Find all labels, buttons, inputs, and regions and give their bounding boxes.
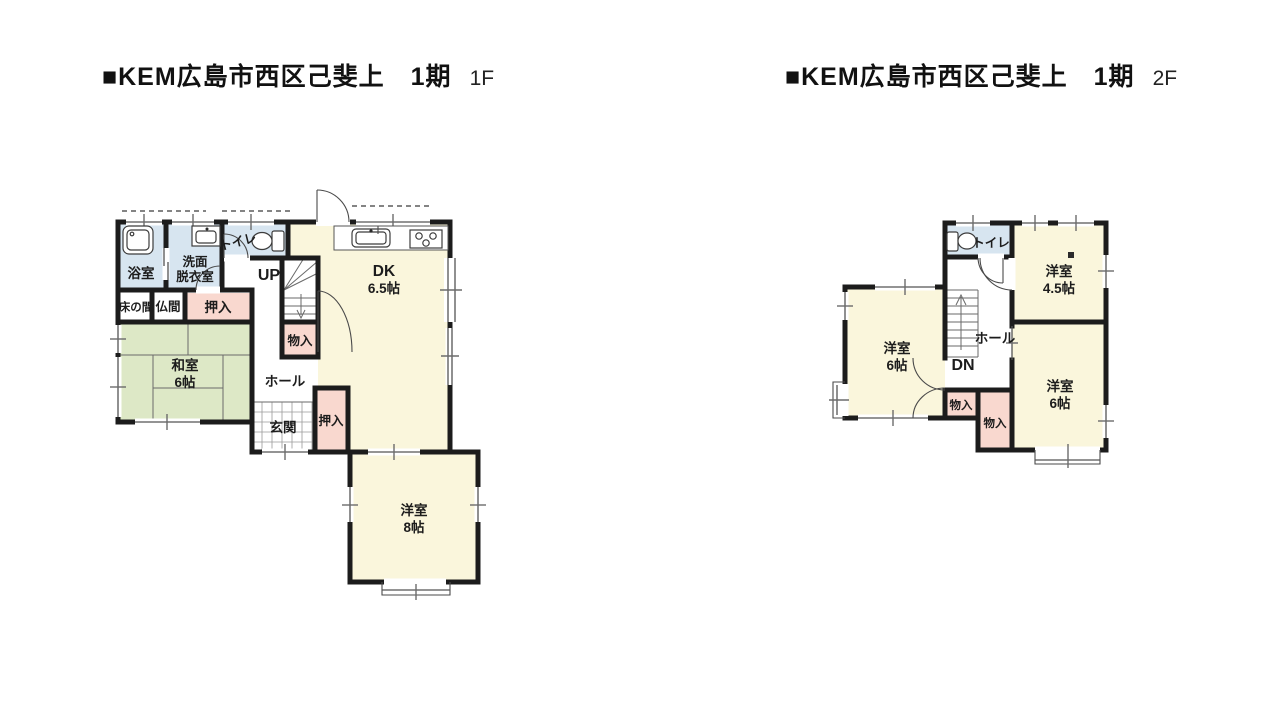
stove-icon	[410, 230, 442, 248]
label-dk-l1: DK	[373, 263, 396, 280]
label-yoshitsu6s-l2: 6帖	[1049, 395, 1071, 411]
label-hall-2f: ホール	[975, 331, 1016, 346]
label-tokonoma-1f: 床の間	[119, 300, 154, 314]
label-yoshitsu8-l2: 8帖	[403, 519, 425, 535]
floorplan-1f: 浴室 洗面 脱衣室 トイレ UP DK 6.5帖 床の間 仏間 押入 和室 6帖…	[110, 190, 486, 600]
label-yoshitsu8-l1: 洋室	[401, 502, 428, 518]
label-monoire-1f: 物入	[287, 333, 313, 348]
label-monoire-b-2f: 物入	[984, 416, 1007, 430]
washbasin-icon	[192, 226, 220, 246]
label-washroom-1f-l2: 脱衣室	[176, 269, 214, 284]
label-washroom-1f-l1: 洗面	[182, 254, 208, 269]
pillar-mark-2f	[1068, 252, 1074, 258]
label-hall-1f: ホール	[265, 374, 306, 389]
label-yoshitsu45-l2: 4.5帖	[1043, 280, 1076, 296]
label-butsuma-1f: 仏間	[155, 300, 180, 314]
stairs-down-2f	[945, 290, 978, 357]
label-bath-1f: 浴室	[128, 265, 155, 281]
label-yoshitsu6w-l2: 6帖	[886, 357, 908, 373]
label-genkan-1f: 玄関	[270, 419, 297, 435]
label-yoshitsu6w-l1: 洋室	[884, 340, 912, 356]
label-monoire-a-2f: 物入	[950, 398, 973, 412]
label-washitsu-l2: 6帖	[174, 374, 196, 390]
label-toilet-2f: トイレ	[972, 236, 1010, 250]
label-oshiire-entry-1f: 押入	[318, 413, 344, 428]
label-yoshitsu6s-l1: 洋室	[1047, 378, 1075, 394]
label-yoshitsu45-l1: 洋室	[1046, 263, 1074, 279]
bathtub-icon	[123, 226, 153, 254]
label-washitsu-l1: 和室	[172, 357, 199, 373]
label-dk-l2: 6.5帖	[368, 280, 401, 296]
sink-icon	[352, 226, 390, 247]
floorplan-2f: トイレ 洋室 4.5帖 洋室 6帖 ホール DN 物入 物入 洋室 6帖	[829, 215, 1114, 468]
label-oshiire-top-1f: 押入	[205, 299, 232, 315]
stairs-up-1f	[284, 258, 318, 318]
label-stairs-up-1f: UP	[258, 267, 281, 284]
kitchen-counter	[334, 226, 448, 250]
floorplan-canvas: 浴室 洗面 脱衣室 トイレ UP DK 6.5帖 床の間 仏間 押入 和室 6帖…	[0, 0, 1280, 711]
label-stairs-down-2f: DN	[951, 357, 974, 374]
